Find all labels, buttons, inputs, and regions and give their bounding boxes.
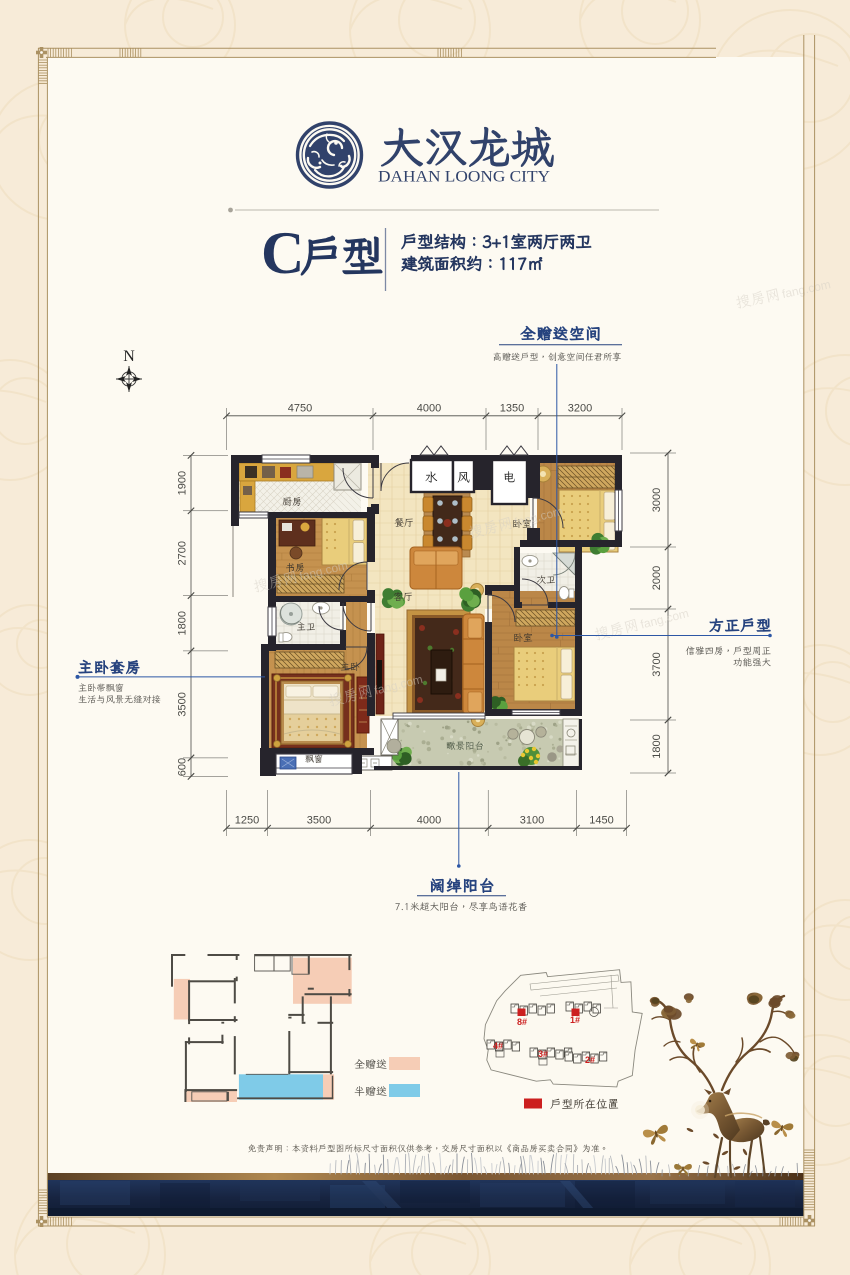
svg-text:N: N — [123, 348, 135, 365]
svg-text:3#: 3# — [538, 1049, 548, 1059]
svg-text:4750: 4750 — [288, 403, 312, 415]
svg-text:600: 600 — [177, 758, 189, 776]
svg-text:3500: 3500 — [177, 692, 189, 716]
svg-text:2000: 2000 — [651, 566, 663, 590]
svg-text:DAHAN LOONG CITY: DAHAN LOONG CITY — [378, 169, 550, 186]
svg-text:1450: 1450 — [589, 815, 613, 827]
svg-text:1250: 1250 — [235, 815, 259, 827]
svg-text:C: C — [261, 220, 304, 286]
svg-text:3700: 3700 — [651, 652, 663, 676]
svg-text:1800: 1800 — [177, 611, 189, 635]
svg-text:3100: 3100 — [520, 815, 544, 827]
svg-text:4#: 4# — [493, 1041, 503, 1051]
svg-text:8#: 8# — [517, 1017, 527, 1027]
svg-text:3000: 3000 — [651, 488, 663, 512]
svg-text:1900: 1900 — [177, 471, 189, 495]
svg-text:4000: 4000 — [417, 403, 441, 415]
svg-text:3200: 3200 — [568, 403, 592, 415]
svg-text:1350: 1350 — [500, 403, 524, 415]
svg-text:1#: 1# — [570, 1015, 580, 1025]
svg-text:1800: 1800 — [651, 734, 663, 758]
svg-text:2700: 2700 — [177, 541, 189, 565]
svg-text:3500: 3500 — [307, 815, 331, 827]
svg-text:2#: 2# — [585, 1055, 595, 1065]
svg-text:4000: 4000 — [417, 815, 441, 827]
